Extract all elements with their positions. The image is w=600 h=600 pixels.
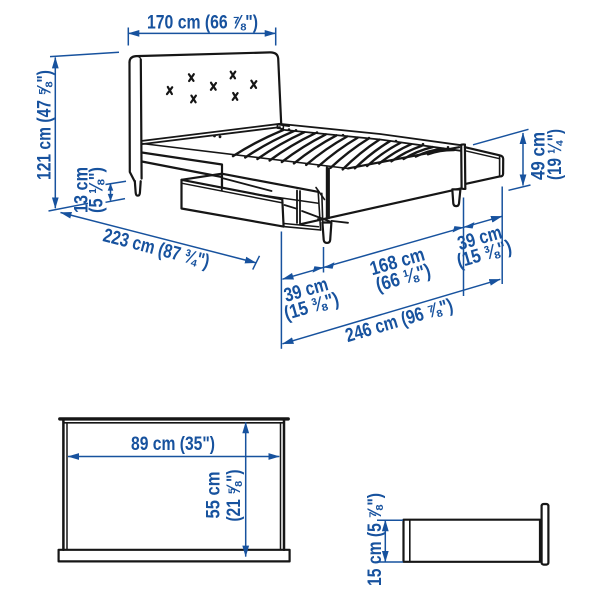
svg-text:55 cm: 55 cm bbox=[202, 472, 224, 519]
svg-text:(5 ⅛"): (5 ⅛") bbox=[86, 167, 108, 213]
svg-text:(21 ⅝"): (21 ⅝") bbox=[223, 470, 245, 522]
svg-text:(19 ¼"): (19 ¼") bbox=[544, 129, 566, 180]
svg-text:15 cm (5 ⅞"): 15 cm (5 ⅞") bbox=[364, 493, 386, 586]
svg-text:170 cm (66 ⅞"): 170 cm (66 ⅞") bbox=[147, 11, 258, 33]
svg-text:121 cm (47 ⅝"): 121 cm (47 ⅝") bbox=[33, 70, 55, 180]
svg-text:89 cm (35"): 89 cm (35") bbox=[131, 433, 215, 455]
